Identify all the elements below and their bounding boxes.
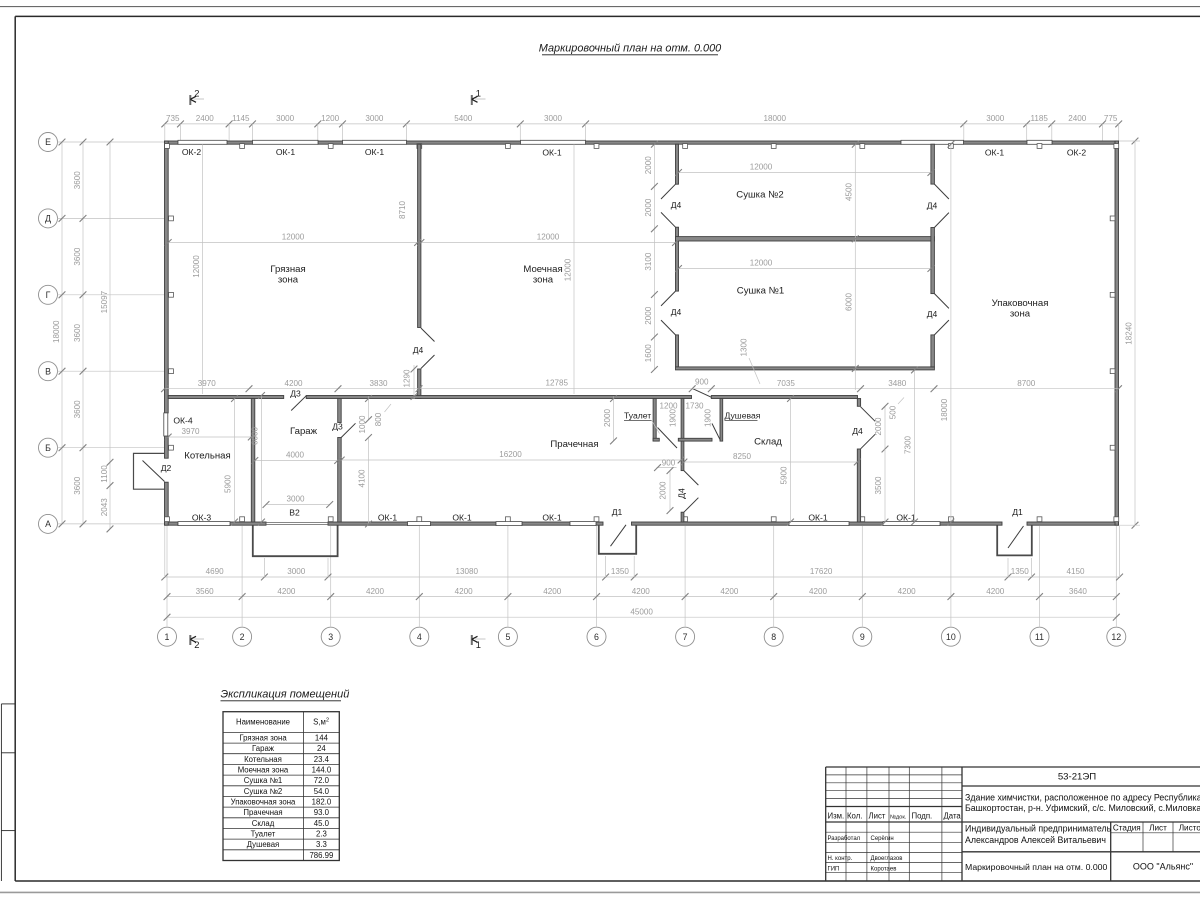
svg-text:3600: 3600 <box>73 247 82 266</box>
svg-text:1900: 1900 <box>669 409 678 428</box>
svg-text:Д4: Д4 <box>852 426 863 436</box>
svg-text:Б: Б <box>45 443 51 453</box>
svg-text:1: 1 <box>476 87 481 98</box>
svg-text:2: 2 <box>194 639 199 650</box>
svg-text:2: 2 <box>240 632 245 642</box>
svg-text:А: А <box>45 519 51 529</box>
svg-text:1900: 1900 <box>704 409 713 428</box>
svg-text:3: 3 <box>328 632 333 642</box>
svg-text:Лист: Лист <box>1149 824 1167 833</box>
svg-text:18240: 18240 <box>1125 322 1134 345</box>
svg-text:В: В <box>45 366 51 376</box>
svg-text:2000: 2000 <box>603 409 612 428</box>
svg-text:2000: 2000 <box>659 481 668 500</box>
svg-text:93.0: 93.0 <box>314 808 330 817</box>
svg-text:3000: 3000 <box>544 114 563 123</box>
svg-text:9: 9 <box>860 632 865 642</box>
svg-text:ОК-1: ОК-1 <box>808 513 828 523</box>
svg-text:5: 5 <box>505 632 510 642</box>
svg-text:2: 2 <box>194 87 199 98</box>
svg-text:4200: 4200 <box>809 587 828 596</box>
svg-text:Туалет: Туалет <box>251 830 276 839</box>
svg-text:Туалет: Туалет <box>624 411 651 421</box>
svg-text:Д1: Д1 <box>612 507 623 517</box>
svg-text:12: 12 <box>1111 632 1121 642</box>
svg-text:3100: 3100 <box>644 252 653 271</box>
svg-text:Экспликация помещений: Экспликация помещений <box>221 689 350 701</box>
svg-text:1350: 1350 <box>611 567 630 576</box>
svg-text:2000: 2000 <box>644 306 653 325</box>
svg-text:3600: 3600 <box>73 324 82 343</box>
svg-text:Индивидуальный предприниматель: Индивидуальный предприниматель <box>965 824 1112 834</box>
svg-text:Гараж: Гараж <box>252 744 275 753</box>
svg-text:Д4: Д4 <box>677 488 687 499</box>
svg-text:144.0: 144.0 <box>312 766 332 775</box>
svg-text:1350: 1350 <box>1011 567 1030 576</box>
svg-text:15097: 15097 <box>100 290 109 313</box>
svg-text:1600: 1600 <box>644 344 653 363</box>
svg-text:S,м: S,м <box>313 718 326 727</box>
svg-text:735: 735 <box>166 114 180 123</box>
svg-text:Дата: Дата <box>944 812 962 821</box>
svg-text:2000: 2000 <box>644 156 653 175</box>
svg-text:Александров Алексей Витальевич: Александров Алексей Витальевич <box>965 835 1106 845</box>
svg-text:4690: 4690 <box>206 567 225 576</box>
svg-text:900: 900 <box>695 378 709 387</box>
svg-text:182.0: 182.0 <box>312 798 332 807</box>
svg-text:23.4: 23.4 <box>314 755 330 764</box>
svg-text:12000: 12000 <box>564 258 573 281</box>
svg-text:53-21ЭП: 53-21ЭП <box>1058 772 1096 783</box>
svg-text:18000: 18000 <box>763 114 786 123</box>
svg-text:5900: 5900 <box>224 475 233 494</box>
svg-text:Упаковочная: Упаковочная <box>992 298 1049 309</box>
svg-text:Душевая: Душевая <box>725 411 761 421</box>
svg-text:ОК-1: ОК-1 <box>378 513 398 523</box>
svg-text:16200: 16200 <box>499 450 522 459</box>
svg-text:3480: 3480 <box>888 379 907 388</box>
svg-text:4200: 4200 <box>632 587 651 596</box>
svg-text:Сушка №1: Сушка №1 <box>737 286 784 297</box>
svg-text:Склад: Склад <box>754 437 782 448</box>
svg-text:3600: 3600 <box>73 400 82 419</box>
svg-text:Склад: Склад <box>252 819 275 828</box>
svg-text:1300: 1300 <box>740 338 749 357</box>
svg-text:Двоеглазов: Двоеглазов <box>871 856 903 862</box>
svg-text:12000: 12000 <box>192 255 201 278</box>
svg-text:10: 10 <box>946 632 956 642</box>
svg-text:1200: 1200 <box>659 401 678 410</box>
svg-text:3600: 3600 <box>73 171 82 190</box>
svg-text:786.99: 786.99 <box>309 851 333 860</box>
svg-text:ОК-1: ОК-1 <box>365 147 385 157</box>
svg-text:Котельная: Котельная <box>244 755 282 764</box>
svg-text:ОК-2: ОК-2 <box>1067 148 1087 158</box>
svg-text:2400: 2400 <box>1068 114 1087 123</box>
svg-text:4150: 4150 <box>1066 567 1085 576</box>
svg-text:1730: 1730 <box>685 401 704 410</box>
svg-text:4200: 4200 <box>366 587 385 596</box>
svg-text:13080: 13080 <box>456 567 479 576</box>
svg-text:1200: 1200 <box>321 114 340 123</box>
svg-text:1: 1 <box>165 632 170 642</box>
svg-text:4200: 4200 <box>277 587 296 596</box>
svg-text:зона: зона <box>1010 309 1031 320</box>
svg-text:900: 900 <box>662 458 676 467</box>
svg-text:3970: 3970 <box>181 427 200 436</box>
svg-text:Д3: Д3 <box>332 422 343 432</box>
svg-text:Здание химчистки, расположенн: Здание химчистки, расположенное по адрес… <box>965 793 1200 803</box>
svg-text:ОК-2: ОК-2 <box>182 147 202 157</box>
svg-text:зона: зона <box>278 275 299 286</box>
svg-text:4100: 4100 <box>358 469 367 488</box>
svg-text:Сушка №2: Сушка №2 <box>244 787 283 796</box>
svg-text:Маркировочный план на отм. 0.0: Маркировочный план на отм. 0.000 <box>539 43 721 55</box>
svg-text:Серёгин: Серёгин <box>871 836 894 842</box>
svg-text:3600: 3600 <box>73 476 82 495</box>
svg-text:5400: 5400 <box>454 114 473 123</box>
svg-text:2043: 2043 <box>100 498 109 517</box>
svg-text:18000: 18000 <box>940 398 949 421</box>
svg-text:12000: 12000 <box>282 233 305 242</box>
svg-text:3560: 3560 <box>196 587 215 596</box>
svg-text:Е: Е <box>45 137 51 147</box>
svg-text:ГИП: ГИП <box>828 866 840 872</box>
svg-text:Сушка №2: Сушка №2 <box>736 190 783 201</box>
svg-text:3000: 3000 <box>287 567 306 576</box>
svg-text:Прачечная: Прачечная <box>243 808 282 817</box>
svg-text:5900: 5900 <box>780 466 789 485</box>
svg-text:4200: 4200 <box>455 587 474 596</box>
svg-text:6000: 6000 <box>251 427 260 446</box>
svg-text:775: 775 <box>1104 114 1118 123</box>
svg-text:18000: 18000 <box>52 320 61 343</box>
svg-text:Подп.: Подп. <box>912 812 933 821</box>
svg-text:Грязная: Грязная <box>270 264 305 275</box>
svg-text:Стадия: Стадия <box>1113 824 1141 833</box>
svg-text:В2: В2 <box>289 508 300 518</box>
svg-text:3000: 3000 <box>286 494 305 503</box>
svg-text:4: 4 <box>417 632 422 642</box>
svg-text:Упаковочная зона: Упаковочная зона <box>231 798 296 807</box>
svg-text:Душевая: Душевая <box>247 840 280 849</box>
svg-text:8710: 8710 <box>398 201 407 220</box>
svg-text:6000: 6000 <box>845 293 854 312</box>
svg-text:2.3: 2.3 <box>316 830 327 839</box>
svg-text:45000: 45000 <box>630 607 653 616</box>
svg-text:Н. контр.: Н. контр. <box>828 856 853 862</box>
svg-text:8250: 8250 <box>733 452 752 461</box>
svg-text:1290: 1290 <box>403 369 412 388</box>
svg-text:4200: 4200 <box>986 587 1005 596</box>
svg-text:Гараж: Гараж <box>290 426 318 437</box>
svg-text:Башкортостан, р-н. Уфимский, с: Башкортостан, р-н. Уфимский, с/с. Миловс… <box>965 803 1200 813</box>
svg-text:Д4: Д4 <box>927 201 938 211</box>
svg-text:ООО "Альянс": ООО "Альянс" <box>1133 862 1193 872</box>
svg-text:3830: 3830 <box>369 379 388 388</box>
svg-text:зона: зона <box>533 275 554 286</box>
svg-text:12000: 12000 <box>537 233 560 242</box>
svg-text:Д: Д <box>45 214 51 224</box>
svg-text:8: 8 <box>771 632 776 642</box>
svg-text:1185: 1185 <box>1030 114 1048 123</box>
svg-text:2: 2 <box>326 718 329 724</box>
svg-text:3970: 3970 <box>198 379 217 388</box>
svg-text:2000: 2000 <box>644 198 653 217</box>
svg-text:Моечная зона: Моечная зона <box>238 766 289 775</box>
svg-text:72.0: 72.0 <box>314 776 330 785</box>
svg-text:3640: 3640 <box>1069 587 1088 596</box>
svg-text:Д4: Д4 <box>671 200 682 210</box>
svg-text:3500: 3500 <box>874 476 883 495</box>
svg-text:45.0: 45.0 <box>314 819 330 828</box>
svg-text:Грязная зона: Грязная зона <box>239 734 287 743</box>
svg-text:ОК-3: ОК-3 <box>192 513 212 523</box>
svg-text:54.0: 54.0 <box>314 787 330 796</box>
svg-text:12000: 12000 <box>750 163 773 172</box>
svg-text:ОК-1: ОК-1 <box>276 147 296 157</box>
svg-text:Д3: Д3 <box>290 389 301 399</box>
svg-text:1145: 1145 <box>232 114 250 123</box>
svg-text:Г: Г <box>46 290 51 300</box>
svg-text:1: 1 <box>476 639 481 650</box>
svg-text:2000: 2000 <box>874 417 883 436</box>
svg-text:7035: 7035 <box>777 379 796 388</box>
svg-text:ОК-1: ОК-1 <box>542 513 562 523</box>
svg-text:Д4: Д4 <box>927 309 938 319</box>
svg-text:1100: 1100 <box>100 465 109 483</box>
svg-text:ОК-1: ОК-1 <box>985 148 1005 158</box>
svg-text:800: 800 <box>374 412 383 426</box>
svg-text:24: 24 <box>317 744 326 753</box>
svg-text:8700: 8700 <box>1017 379 1036 388</box>
svg-text:4200: 4200 <box>898 587 917 596</box>
svg-text:Д4: Д4 <box>413 345 424 355</box>
svg-text:Разработал: Разработал <box>828 836 861 842</box>
svg-text:Листов: Листов <box>1179 824 1200 833</box>
svg-text:Лист: Лист <box>869 812 886 821</box>
svg-text:№док.: №док. <box>890 815 907 821</box>
svg-text:Котельная: Котельная <box>184 451 230 462</box>
svg-text:12000: 12000 <box>750 259 773 268</box>
svg-text:Д2: Д2 <box>161 463 172 473</box>
svg-text:4500: 4500 <box>845 183 854 202</box>
svg-text:Д4: Д4 <box>671 307 682 317</box>
svg-text:Прачечная: Прачечная <box>550 439 598 450</box>
svg-text:4200: 4200 <box>720 587 739 596</box>
svg-text:7: 7 <box>683 632 688 642</box>
svg-text:Наименование: Наименование <box>236 718 290 727</box>
svg-text:Сушка №1: Сушка №1 <box>244 776 283 785</box>
svg-text:Д1: Д1 <box>1012 507 1023 517</box>
svg-text:4200: 4200 <box>543 587 562 596</box>
svg-text:4200: 4200 <box>284 379 303 388</box>
svg-text:ОК-4: ОК-4 <box>173 416 193 426</box>
svg-text:Маркировочный план на отм. 0.0: Маркировочный план на отм. 0.000 <box>965 862 1107 872</box>
svg-text:4000: 4000 <box>286 450 305 459</box>
svg-text:Кол.: Кол. <box>847 812 862 821</box>
svg-text:3000: 3000 <box>986 114 1005 123</box>
svg-text:12785: 12785 <box>545 379 568 388</box>
svg-text:500: 500 <box>889 405 898 419</box>
svg-text:1000: 1000 <box>358 415 367 434</box>
svg-text:ОК-1: ОК-1 <box>452 513 472 523</box>
svg-text:7300: 7300 <box>904 436 913 455</box>
svg-text:17620: 17620 <box>810 567 833 576</box>
svg-text:2400: 2400 <box>196 114 215 123</box>
svg-text:144: 144 <box>315 734 329 743</box>
svg-text:11: 11 <box>1035 632 1044 642</box>
svg-text:6: 6 <box>594 632 599 642</box>
svg-text:3000: 3000 <box>365 114 384 123</box>
svg-text:3.3: 3.3 <box>316 840 327 849</box>
svg-text:ОК-1: ОК-1 <box>896 513 916 523</box>
svg-text:3000: 3000 <box>276 114 295 123</box>
svg-text:Изм.: Изм. <box>828 812 845 821</box>
svg-text:Коротаев: Коротаев <box>871 866 897 872</box>
svg-text:ОК-1: ОК-1 <box>542 148 562 158</box>
svg-text:Моечная: Моечная <box>523 264 562 275</box>
